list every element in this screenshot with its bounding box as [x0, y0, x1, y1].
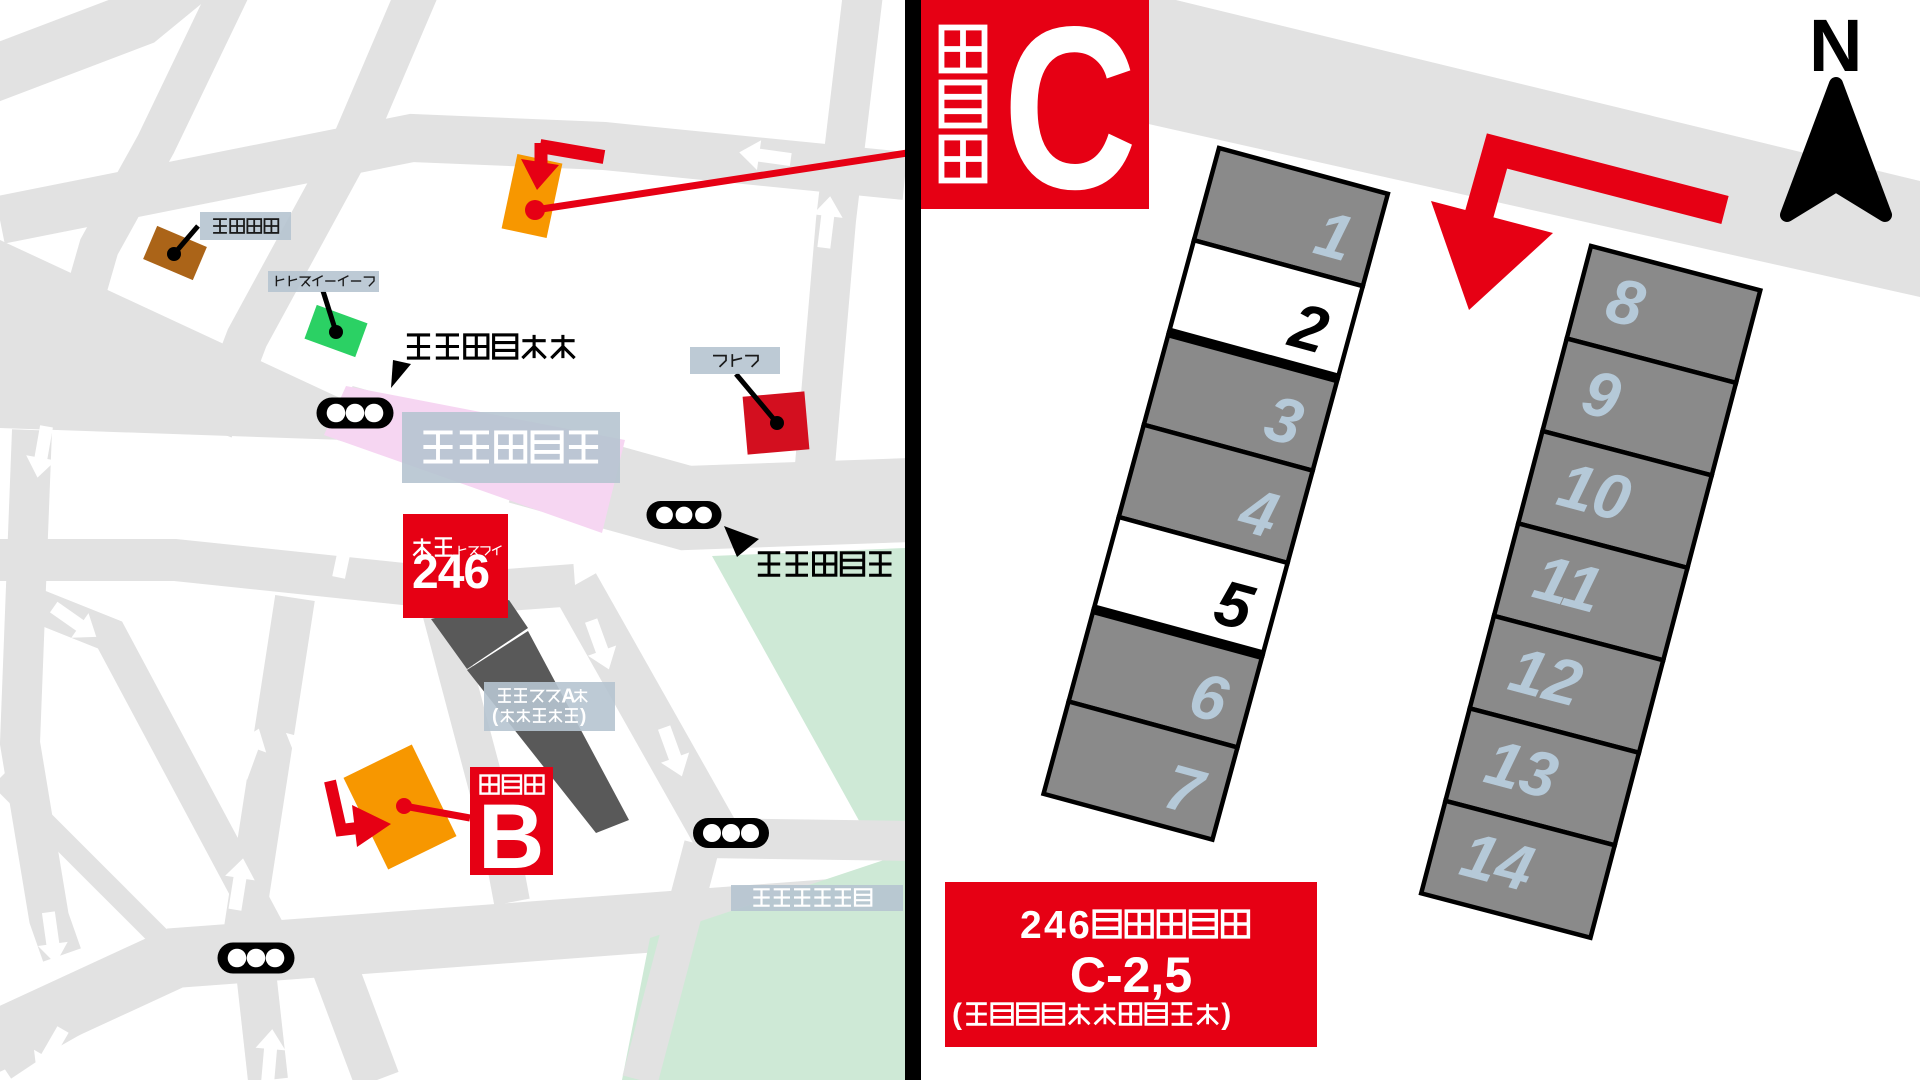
svg-text:4: 4 — [1044, 904, 1066, 947]
svg-text:(: ( — [492, 706, 499, 727]
svg-text:6: 6 — [1068, 904, 1090, 947]
svg-text:C: C — [1003, 0, 1137, 238]
svg-text:C-2,5: C-2,5 — [1070, 947, 1192, 1003]
svg-text:N: N — [1809, 4, 1862, 87]
svg-text:(: ( — [952, 998, 962, 1031]
svg-text:2: 2 — [1020, 904, 1042, 947]
svg-text:): ) — [1221, 998, 1231, 1031]
svg-text:B: B — [478, 786, 544, 888]
svg-text:): ) — [580, 706, 586, 727]
svg-text:A: A — [561, 686, 575, 708]
svg-text:246: 246 — [412, 546, 489, 599]
